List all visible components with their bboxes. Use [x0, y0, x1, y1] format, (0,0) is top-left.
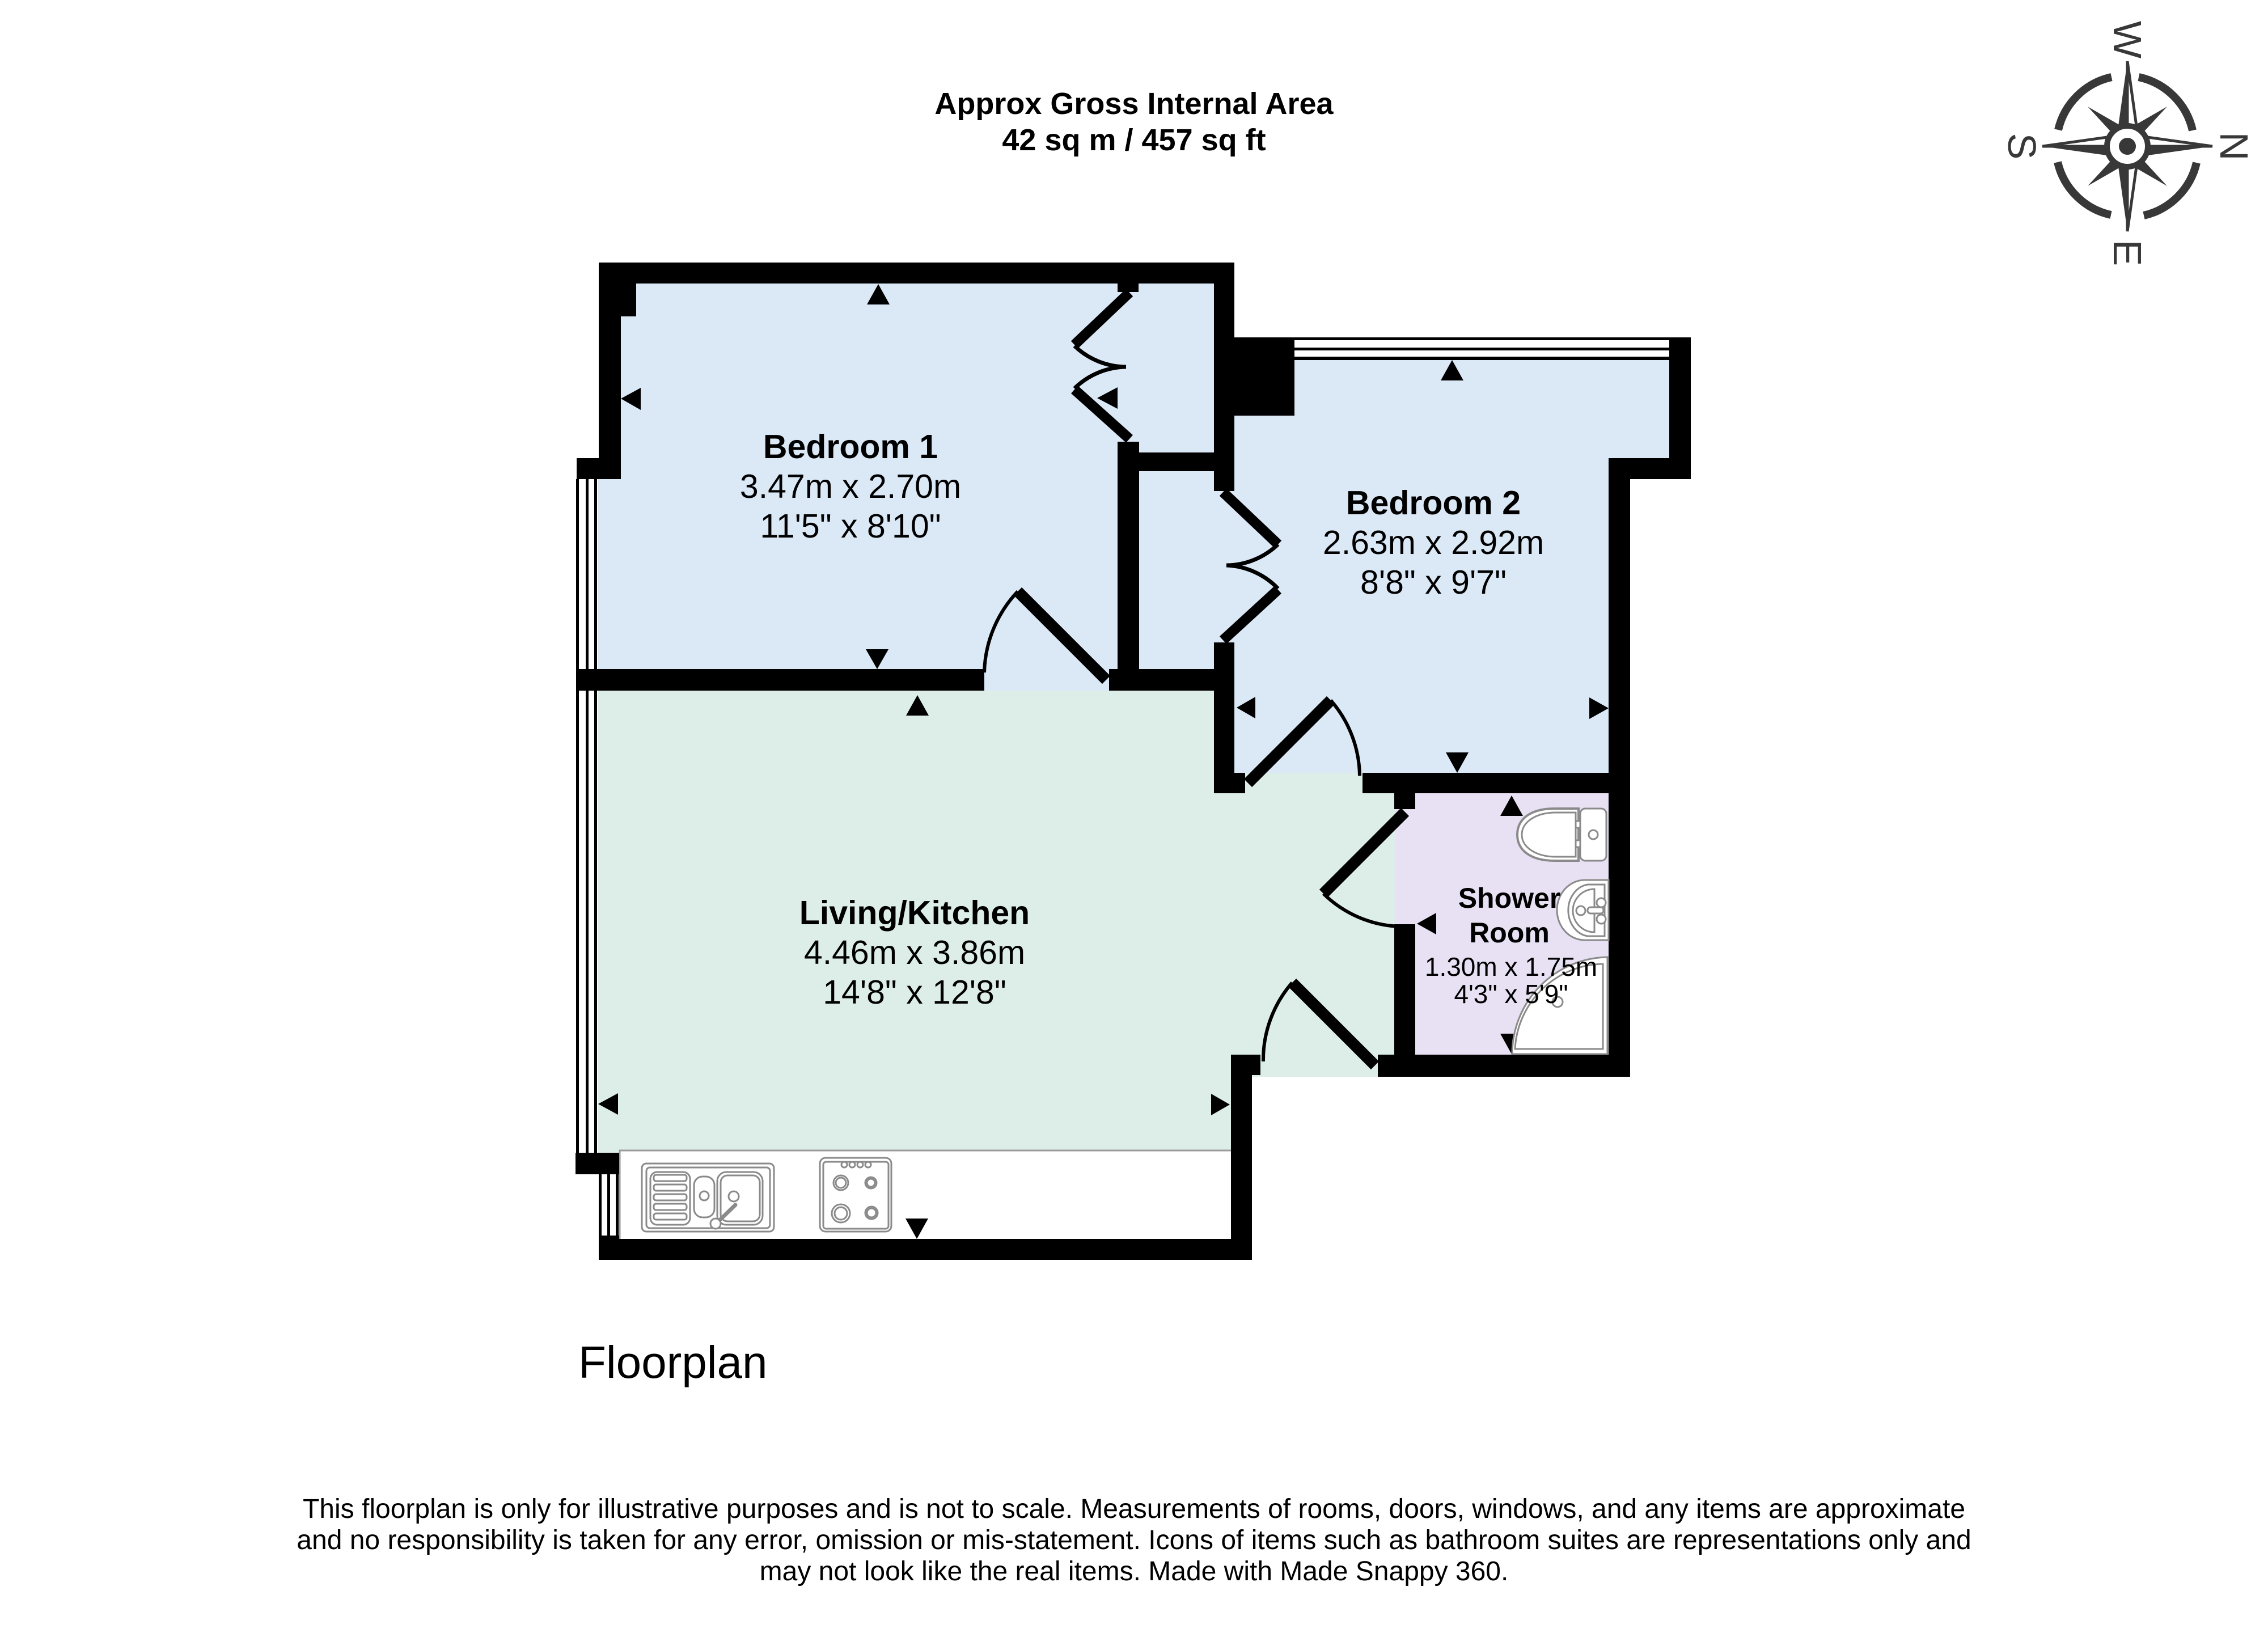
svg-text:2.63m x 2.92m: 2.63m x 2.92m — [1323, 524, 1544, 561]
svg-text:S: S — [2000, 133, 2044, 160]
svg-text:8'8" x 9'7": 8'8" x 9'7" — [1360, 564, 1507, 601]
svg-text:This floorplan is only for ill: This floorplan is only for illustrative … — [303, 1494, 1965, 1524]
svg-text:Bedroom 2: Bedroom 2 — [1346, 484, 1521, 522]
svg-text:Shower: Shower — [1458, 882, 1561, 914]
svg-text:4.46m x 3.86m: 4.46m x 3.86m — [804, 934, 1025, 971]
svg-text:E: E — [2105, 240, 2149, 266]
svg-text:Approx Gross Internal Area: Approx Gross Internal Area — [934, 87, 1334, 121]
svg-text:3.47m x 2.70m: 3.47m x 2.70m — [740, 468, 961, 505]
svg-text:4'3" x 5'9": 4'3" x 5'9" — [1454, 979, 1568, 1009]
svg-text:11'5" x 8'10": 11'5" x 8'10" — [760, 507, 941, 545]
svg-text:Living/Kitchen: Living/Kitchen — [799, 894, 1030, 932]
svg-text:Room: Room — [1469, 917, 1550, 949]
svg-text:42 sq m / 457 sq ft: 42 sq m / 457 sq ft — [1002, 123, 1266, 157]
svg-text:1.30m x 1.75m: 1.30m x 1.75m — [1425, 952, 1597, 982]
svg-text:Bedroom 1: Bedroom 1 — [763, 428, 938, 466]
svg-text:N: N — [2212, 132, 2256, 161]
svg-text:Floorplan: Floorplan — [578, 1337, 768, 1387]
svg-text:W: W — [2105, 21, 2149, 58]
svg-text:and no responsibility is taken: and no responsibility is taken for any e… — [297, 1525, 1971, 1555]
svg-text:14'8" x 12'8": 14'8" x 12'8" — [823, 974, 1006, 1011]
svg-text:may not look like the real ite: may not look like the real items. Made w… — [760, 1556, 1509, 1587]
